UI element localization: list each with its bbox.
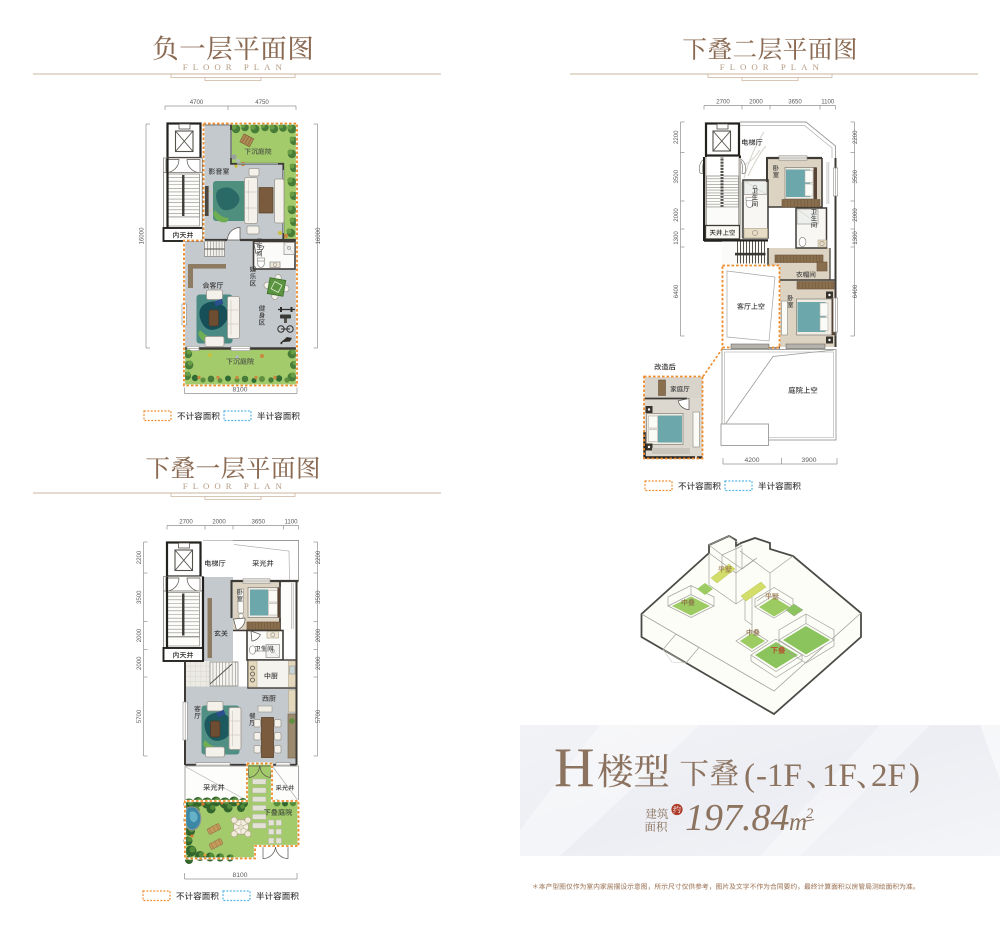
svg-text:2000: 2000 xyxy=(749,98,763,105)
svg-text:1300: 1300 xyxy=(852,231,859,245)
svg-text:1100: 1100 xyxy=(284,518,298,525)
svg-text:3500: 3500 xyxy=(136,590,143,604)
svg-text:m: m xyxy=(789,809,807,836)
svg-text:-1F: -1F xyxy=(756,758,802,794)
svg-text:2700: 2700 xyxy=(716,98,730,105)
svg-text:1F: 1F xyxy=(822,758,857,794)
svg-text:2000: 2000 xyxy=(136,656,143,670)
svg-text:3500: 3500 xyxy=(315,590,322,604)
svg-text:4700: 4700 xyxy=(190,99,204,106)
svg-text:2200: 2200 xyxy=(315,550,322,564)
svg-text:5700: 5700 xyxy=(136,709,143,723)
svg-text:2200: 2200 xyxy=(136,550,143,564)
svg-text:(: ( xyxy=(744,758,755,794)
svg-text:F L O O R P L A N: F L O O R P L A N xyxy=(183,481,283,491)
svg-text:2200: 2200 xyxy=(852,130,859,144)
svg-text:3500: 3500 xyxy=(673,169,680,183)
svg-text:2000: 2000 xyxy=(315,628,322,642)
svg-text:2700: 2700 xyxy=(179,518,193,525)
svg-text:8100: 8100 xyxy=(233,386,248,393)
svg-text:3650: 3650 xyxy=(251,518,265,525)
svg-text:3650: 3650 xyxy=(788,98,802,105)
svg-text:197.84: 197.84 xyxy=(685,797,790,839)
svg-text:): ) xyxy=(909,758,920,794)
svg-text:2200: 2200 xyxy=(673,130,680,144)
svg-text:1100: 1100 xyxy=(821,98,835,105)
svg-text:2000: 2000 xyxy=(315,656,322,670)
svg-text:8100: 8100 xyxy=(233,872,248,879)
svg-text:2000: 2000 xyxy=(136,628,143,642)
svg-text:5700: 5700 xyxy=(315,709,322,723)
svg-text:4750: 4750 xyxy=(255,99,269,106)
svg-text:1300: 1300 xyxy=(673,231,680,245)
svg-text:4200: 4200 xyxy=(745,457,760,464)
svg-text:H: H xyxy=(554,737,594,799)
svg-text:2000: 2000 xyxy=(852,208,859,222)
svg-text:3900: 3900 xyxy=(802,457,817,464)
svg-text:16000: 16000 xyxy=(139,227,146,245)
svg-text:2F: 2F xyxy=(871,758,906,794)
svg-text:F L O O R P L A N: F L O O R P L A N xyxy=(720,62,820,72)
svg-text:6400: 6400 xyxy=(852,284,859,298)
svg-text:6400: 6400 xyxy=(673,284,680,298)
svg-text:F L O O R P L A N: F L O O R P L A N xyxy=(183,62,283,72)
svg-text:3500: 3500 xyxy=(852,169,859,183)
svg-text:2000: 2000 xyxy=(212,518,226,525)
svg-text:2000: 2000 xyxy=(673,208,680,222)
svg-text:16000: 16000 xyxy=(315,227,322,245)
